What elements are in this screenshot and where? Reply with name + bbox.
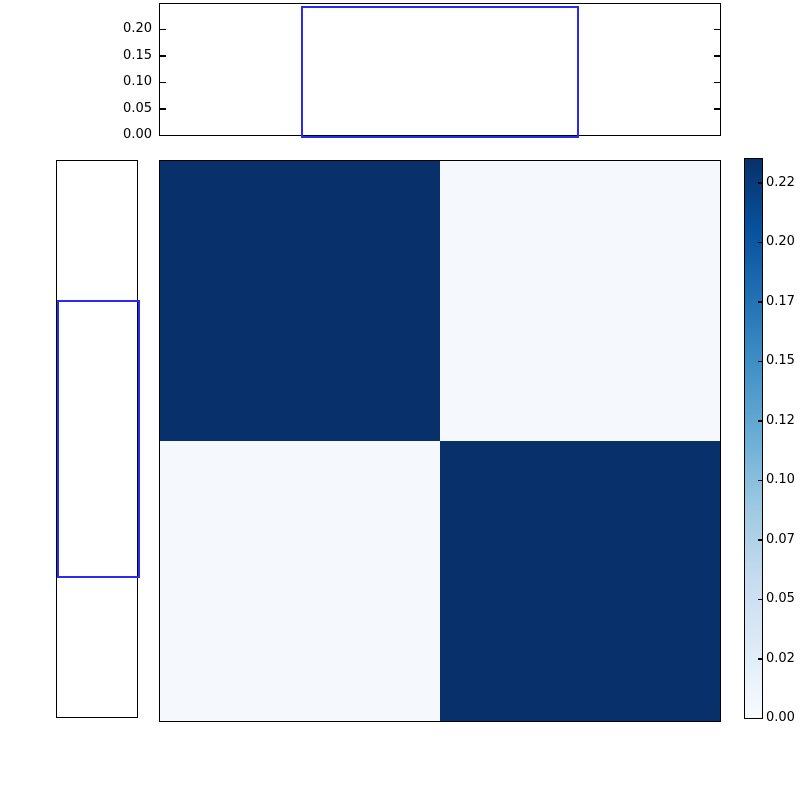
colorbar-tick-label: 0.22 — [766, 174, 800, 192]
y-tick-label: 0.15 — [104, 47, 152, 65]
colorbar-tick-label: 0.17 — [766, 293, 800, 311]
heatmap-cell-0-1 — [440, 161, 720, 441]
colorbar-tick-mark — [758, 539, 762, 541]
y-tick-mark-left — [160, 108, 166, 110]
colorbar-tick-label: 0.12 — [766, 412, 800, 430]
y-tick-label: 0.10 — [104, 73, 152, 91]
left-marginal-plot-area — [57, 161, 137, 717]
left-histogram-step — [57, 300, 140, 578]
colorbar-tick-mark — [758, 301, 762, 303]
colorbar — [744, 158, 763, 719]
figure: 0.200.150.100.050.000.220.200.170.150.12… — [0, 0, 800, 800]
y-tick-mark-right — [714, 135, 720, 137]
colorbar-tick-mark — [758, 658, 762, 660]
top-marginal-plot-area — [160, 4, 720, 135]
y-tick-mark-left — [160, 82, 166, 84]
colorbar-tick-label: 0.20 — [766, 233, 800, 251]
y-tick-mark-left — [160, 55, 166, 57]
y-tick-mark-left — [160, 135, 166, 137]
colorbar-tick-mark — [758, 182, 762, 184]
colorbar-tick-label: 0.10 — [766, 471, 800, 489]
colorbar-tick-mark — [758, 361, 762, 363]
heatmap-cell-0-0 — [160, 161, 440, 441]
colorbar-tick-mark — [758, 420, 762, 422]
colorbar-tick-label: 0.07 — [766, 531, 800, 549]
colorbar-tick-label: 0.00 — [766, 709, 800, 727]
y-tick-label: 0.00 — [104, 126, 152, 144]
heatmap-cell-1-0 — [160, 441, 440, 721]
top-histogram-step — [301, 6, 580, 138]
colorbar-tick-label: 0.05 — [766, 590, 800, 608]
y-tick-mark-right — [714, 55, 720, 57]
colorbar-tick-mark — [758, 242, 762, 244]
colorbar-tick-label: 0.15 — [766, 352, 800, 370]
colorbar-tick-mark — [758, 599, 762, 601]
y-tick-mark-left — [160, 29, 166, 31]
colorbar-tick-label: 0.02 — [766, 650, 800, 668]
y-tick-label: 0.20 — [104, 20, 152, 38]
y-tick-mark-right — [714, 82, 720, 84]
left-marginal-axes — [56, 160, 138, 718]
heatmap — [159, 160, 721, 722]
top-marginal-axes — [159, 3, 721, 136]
y-tick-mark-right — [714, 108, 720, 110]
heatmap-cell-1-1 — [440, 441, 720, 721]
y-tick-label: 0.05 — [104, 100, 152, 118]
y-tick-mark-right — [714, 29, 720, 31]
colorbar-tick-mark — [758, 480, 762, 482]
